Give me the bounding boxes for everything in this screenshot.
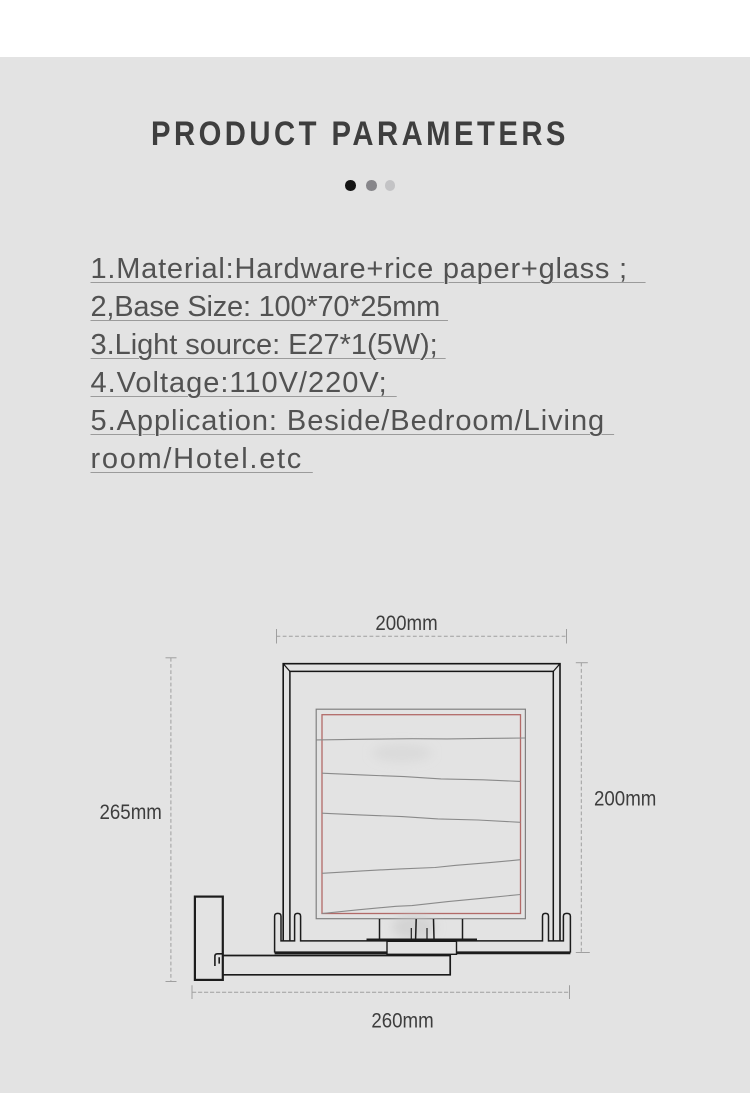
svg-text:200mm: 200mm	[594, 787, 656, 810]
svg-text:200mm: 200mm	[375, 612, 437, 635]
svg-text:260mm: 260mm	[371, 1009, 433, 1032]
svg-text:265mm: 265mm	[100, 801, 162, 824]
